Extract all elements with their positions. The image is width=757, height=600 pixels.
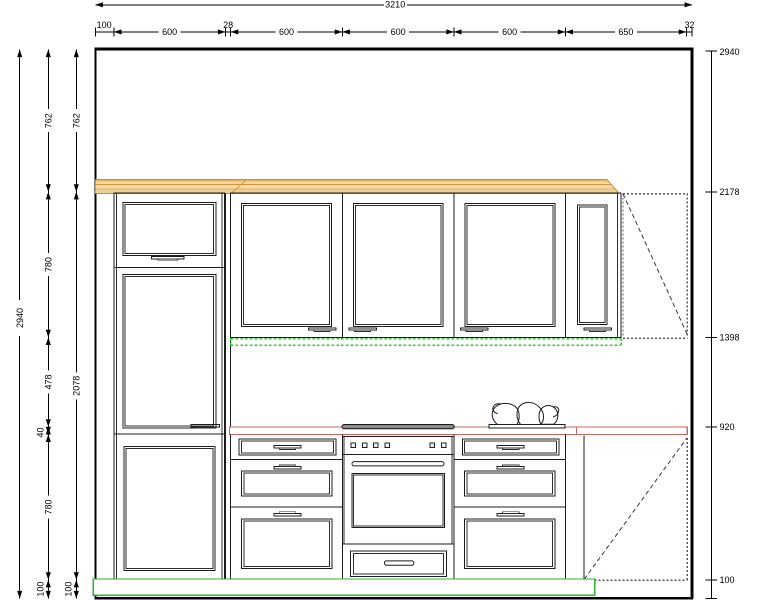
svg-text:600: 600 <box>391 27 406 37</box>
svg-text:920: 920 <box>720 422 735 432</box>
svg-text:650: 650 <box>618 27 633 37</box>
svg-text:3210: 3210 <box>385 0 405 10</box>
svg-text:32: 32 <box>684 20 694 30</box>
svg-text:40: 40 <box>36 427 46 437</box>
svg-text:2940: 2940 <box>15 308 25 328</box>
svg-text:2178: 2178 <box>720 187 740 197</box>
svg-text:478: 478 <box>44 374 54 389</box>
svg-text:100: 100 <box>64 582 74 597</box>
svg-text:762: 762 <box>72 113 82 128</box>
svg-text:100: 100 <box>720 575 735 585</box>
svg-text:100: 100 <box>97 20 112 30</box>
svg-text:2078: 2078 <box>72 376 82 396</box>
svg-text:780: 780 <box>44 257 54 272</box>
svg-text:100: 100 <box>36 582 46 597</box>
svg-text:600: 600 <box>279 27 294 37</box>
svg-text:762: 762 <box>44 113 54 128</box>
svg-text:600: 600 <box>162 27 177 37</box>
svg-text:1398: 1398 <box>720 333 740 343</box>
svg-text:28: 28 <box>223 20 233 30</box>
svg-text:780: 780 <box>44 499 54 514</box>
svg-text:2940: 2940 <box>720 47 740 57</box>
svg-text:600: 600 <box>502 27 517 37</box>
